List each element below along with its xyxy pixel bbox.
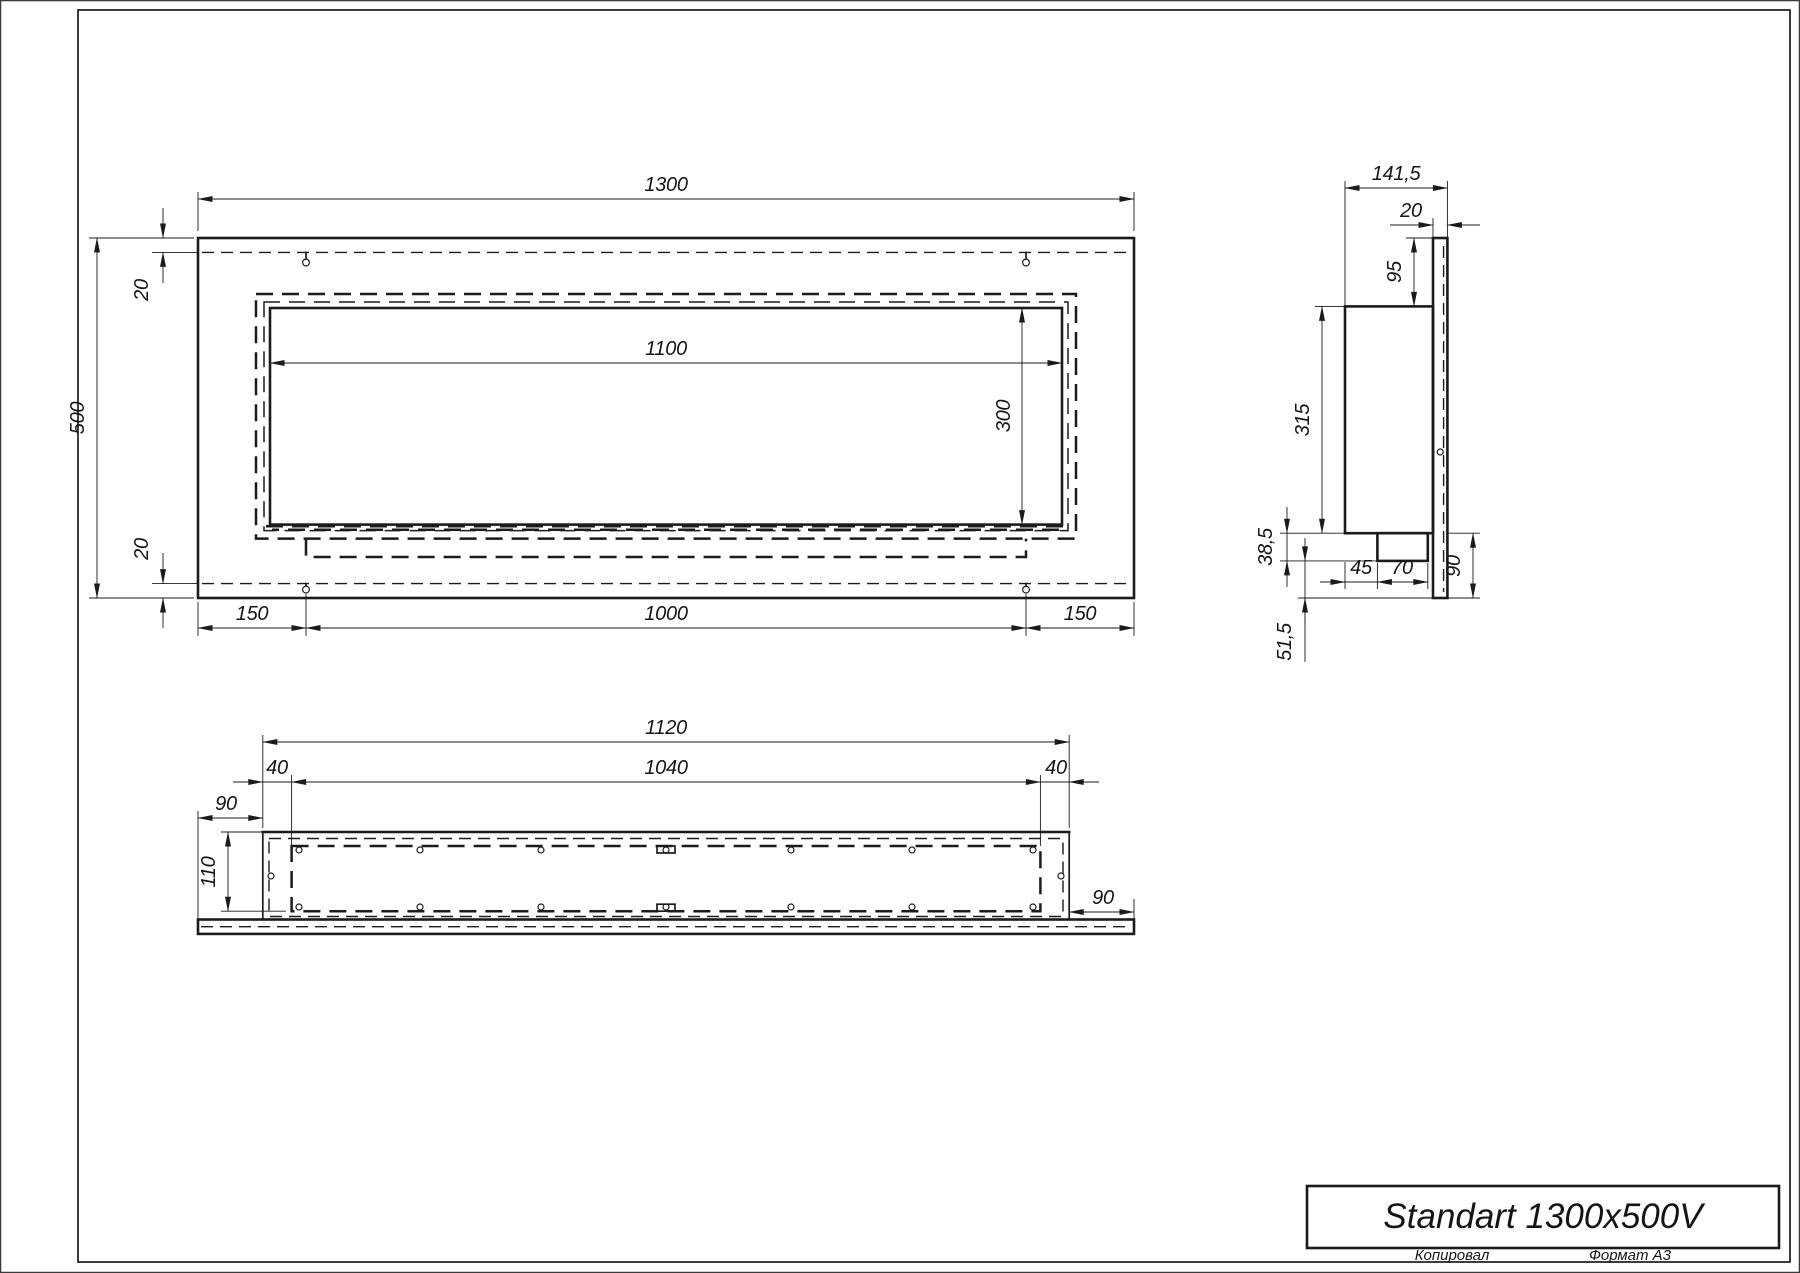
dim-label-1120: 1120 [645, 717, 687, 739]
footer-copied-label: Копировал [1415, 1247, 1490, 1264]
dim-label-20-bottom: 20 [131, 538, 153, 561]
dim-label-40-left: 40 [266, 757, 288, 779]
dim-label-500: 500 [67, 402, 89, 435]
dim-label-1300: 1300 [644, 174, 687, 196]
dim-label-20-side: 20 [1399, 200, 1422, 222]
dim-label-45: 45 [1350, 557, 1373, 579]
dim-label-141-5: 141,5 [1372, 163, 1422, 185]
dim-label-315: 315 [1292, 403, 1314, 437]
dim-label-90-right: 90 [1092, 887, 1114, 909]
dim-label-90-left: 90 [215, 793, 237, 815]
dim-label-150-right: 150 [1064, 603, 1097, 625]
drawing-sheet: 1300 500 20 20 1100 [0, 0, 1800, 1273]
drawing-title: Standart 1300x500V [1383, 1197, 1706, 1236]
dim-label-51-5: 51,5 [1274, 622, 1296, 661]
dim-label-20-top: 20 [131, 279, 153, 302]
dim-label-1000: 1000 [644, 603, 687, 625]
dim-label-38-5: 38,5 [1255, 527, 1277, 566]
dim-label-110: 110 [198, 856, 220, 887]
paper-edge [1, 1, 1800, 1273]
dim-label-1100: 1100 [645, 338, 687, 360]
dim-label-90-side: 90 [1443, 555, 1465, 577]
dim-label-70: 70 [1391, 557, 1413, 579]
dim-label-95: 95 [1384, 260, 1406, 283]
dim-label-300: 300 [993, 400, 1015, 433]
dim-label-150-left: 150 [236, 603, 269, 625]
dim-label-1040: 1040 [644, 757, 687, 779]
footer-format-label: Формат А3 [1589, 1247, 1672, 1264]
dim-label-40-right: 40 [1045, 757, 1067, 779]
